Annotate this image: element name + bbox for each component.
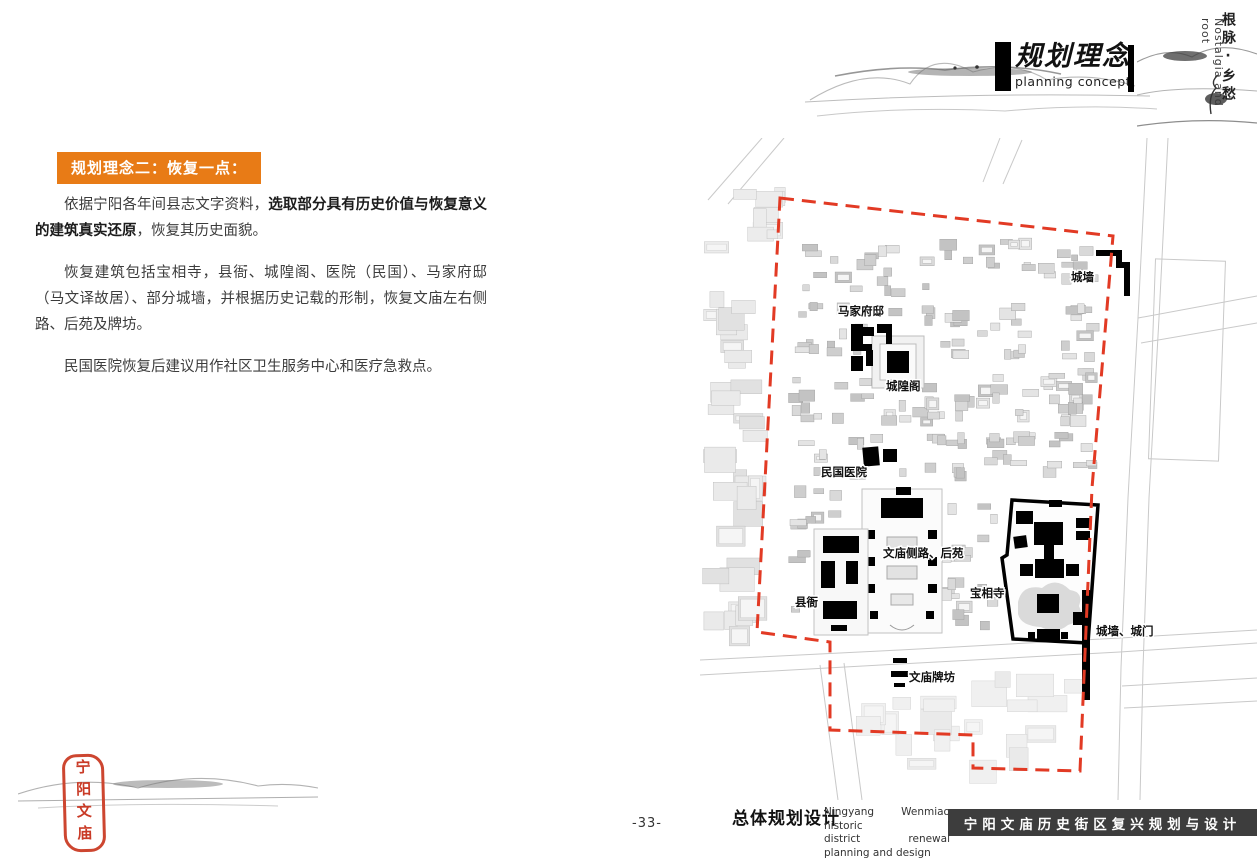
- planning-boundary: [757, 198, 1113, 771]
- master-plan-map: 城墙 马家府邸 城隍阁 民国医院 文庙侧路、后苑 县衙 宝相寺 城墙、城门 文庙…: [700, 138, 1257, 800]
- label-city-wall: 城墙: [1071, 270, 1094, 284]
- page-title: 规划理念: [1015, 43, 1131, 70]
- body-text: 依据宁阳各年间县志文字资料，选取部分具有历史价值与恢复意义的建筑真实还原，恢复其…: [35, 192, 487, 397]
- corner-slogan-en: Nostalgia and root: [1199, 18, 1225, 128]
- header-accent-bar: [1128, 45, 1134, 92]
- footer-subtitle-en: Ningyang Wenmiao historic district renew…: [824, 806, 950, 861]
- ink-mountain-art-corner: [1137, 0, 1257, 135]
- footer-project-bar: 宁阳文庙历史街区复兴规划与设计: [948, 809, 1257, 836]
- paragraph-1: 依据宁阳各年间县志文字资料，选取部分具有历史价值与恢复意义的建筑真实还原，恢复其…: [35, 192, 487, 244]
- label-wenmiao-side-roads: 文庙侧路、后苑: [883, 546, 964, 560]
- footer-subtitle-line1: Ningyang Wenmiao historic: [824, 806, 950, 833]
- header-accent-block: [995, 42, 1011, 91]
- label-county-yamen: 县衙: [795, 595, 818, 609]
- footer-subtitle-line2: district renewal planning and design: [824, 833, 950, 860]
- label-republic-hospital: 民国医院: [821, 465, 867, 479]
- label-chenghuang-pavilion: 城隍阁: [886, 379, 921, 393]
- p1-text: 依据宁阳各年间县志文字资料，: [64, 197, 268, 213]
- master-plan-map-svg: 城墙 马家府邸 城隍阁 民国医院 文庙侧路、后苑 县衙 宝相寺 城墙、城门 文庙…: [700, 138, 1257, 800]
- red-seal: 宁阳文庙: [62, 753, 107, 852]
- label-ma-mansion: 马家府邸: [838, 304, 884, 318]
- page-subtitle: planning concept: [1015, 74, 1131, 89]
- seal-text: 宁阳文庙: [72, 759, 95, 848]
- page-number: -33-: [612, 816, 682, 831]
- paragraph-3: 民国医院恢复后建议用作社区卫生服务中心和医疗急救点。: [35, 354, 487, 380]
- label-wall-and-gate: 城墙、城门: [1096, 624, 1154, 638]
- building-fabric: [703, 187, 1100, 783]
- label-baoxiang-temple: 宝相寺: [970, 586, 1005, 600]
- label-wenmiao-archway: 文庙牌坊: [909, 670, 955, 684]
- document-page: 规划理念 planning concept 根脉·乡愁 Nostalgia an…: [0, 0, 1257, 862]
- paragraph-2: 恢复建筑包括宝相寺，县衙、城隍阁、医院（民国）、马家府邸（马文译故居）、部分城墙…: [35, 260, 487, 338]
- section-banner: 规划理念二：恢复一点：: [57, 152, 261, 184]
- p1-text-end: ，恢复其历史面貌。: [137, 223, 268, 239]
